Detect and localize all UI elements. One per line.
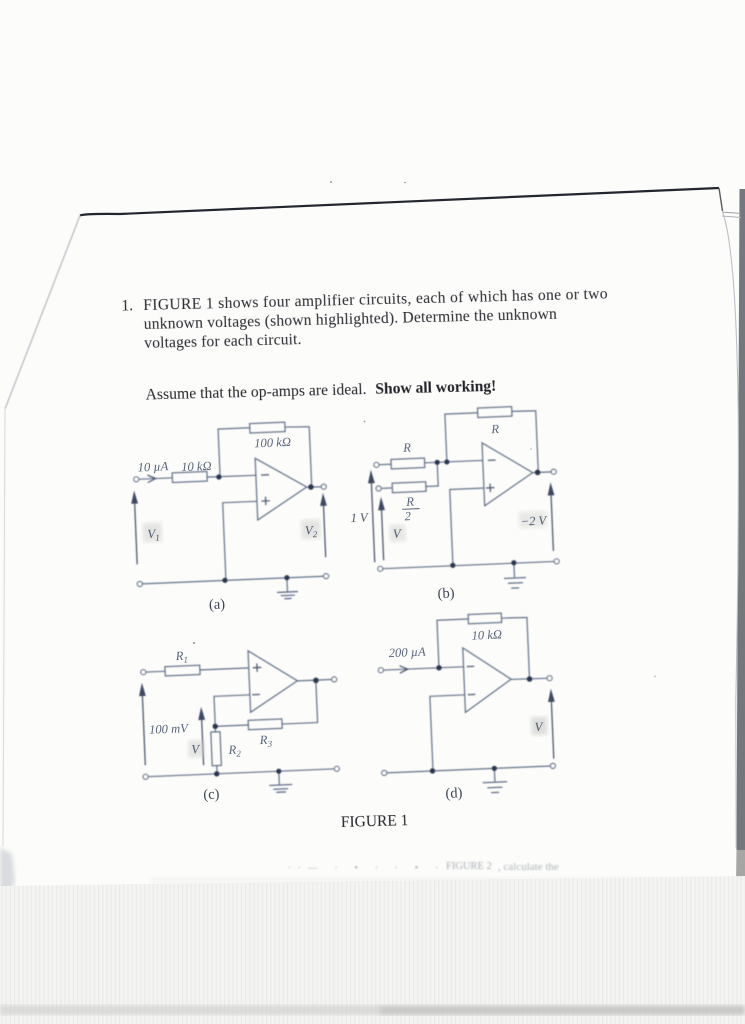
svg-text:1.: 1. <box>121 297 133 314</box>
svg-text:R: R <box>405 495 415 509</box>
svg-text:100 kΩ: 100 kΩ <box>254 435 291 451</box>
svg-text:200 µA: 200 µA <box>388 645 426 661</box>
svg-text:10 kΩ: 10 kΩ <box>181 459 212 474</box>
svg-text:FIGURE 2: FIGURE 2 <box>446 861 492 872</box>
svg-text:(b): (b) <box>437 585 455 602</box>
svg-text:(d): (d) <box>445 785 463 802</box>
svg-text:(a): (a) <box>209 596 226 613</box>
svg-text:10 kΩ: 10 kΩ <box>471 627 502 642</box>
svg-text:−2 V: −2 V <box>520 513 548 528</box>
svg-text:10 µA: 10 µA <box>137 459 169 474</box>
svg-text:, calculate the: , calculate the <box>498 861 559 873</box>
svg-text:(c): (c) <box>203 786 220 803</box>
svg-text:1 V: 1 V <box>350 510 369 525</box>
svg-text:FIGURE 1: FIGURE 1 <box>341 812 409 831</box>
svg-text:100 mV: 100 mV <box>149 721 190 737</box>
svg-text:R: R <box>490 422 500 436</box>
svg-text:Show all working!: Show all working! <box>375 378 496 398</box>
svg-text:R: R <box>402 441 412 455</box>
